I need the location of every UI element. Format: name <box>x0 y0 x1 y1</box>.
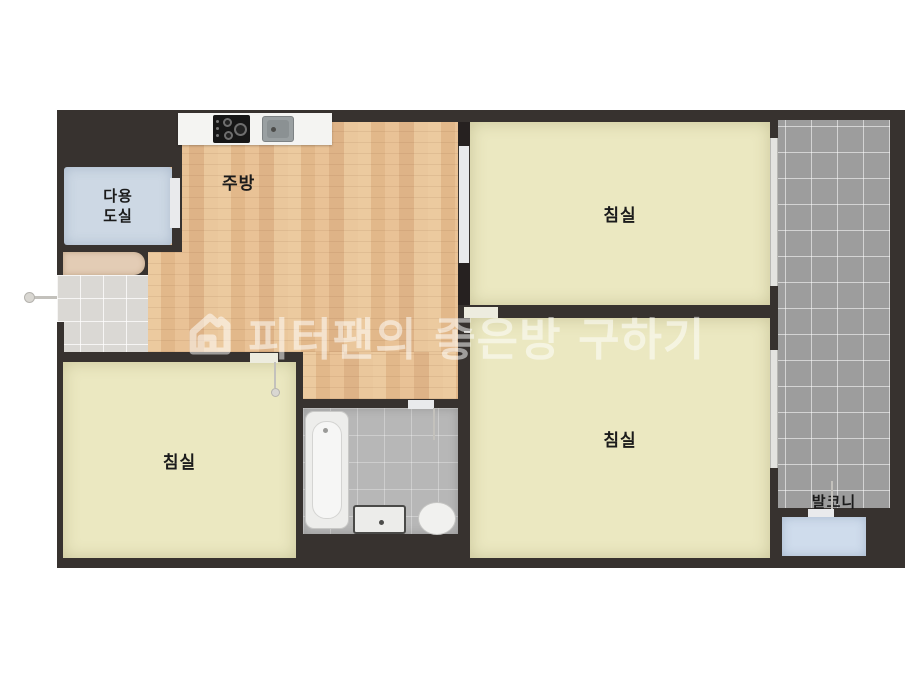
balcony-storage-door-leaf <box>831 481 833 509</box>
bathroom-door <box>408 400 434 409</box>
utility-room-label-line2: 도실 <box>103 206 133 226</box>
wall-stub-b1-door-bottom <box>458 263 470 305</box>
bedroom-top-right-door <box>459 146 469 263</box>
bedroom-bottom-left-label: 침실 <box>163 448 196 473</box>
bedroom-bottom-right-door <box>464 307 498 318</box>
kitchen-label: 주방 <box>222 169 255 194</box>
bedroom-top-right: 침실 <box>470 122 770 305</box>
kitchen-counter <box>178 113 332 145</box>
wall-utility-bottom <box>57 245 182 252</box>
utility-room-label: 다용 도실 <box>103 186 133 227</box>
bathtub-icon <box>305 411 349 529</box>
wall-top-left-mass <box>57 110 182 167</box>
bedroom-bottom-right-label: 침실 <box>603 426 636 451</box>
floorplan-canvas: 다용 도실 침실 침실 침실 발코니 <box>0 0 923 676</box>
entrance-door-handle-icon <box>33 296 57 299</box>
bedroom-bottom-right: 침실 <box>470 318 770 558</box>
toilet-icon <box>418 502 456 535</box>
wall-stub-b1-door-top <box>458 122 470 146</box>
bathroom-door-leaf <box>433 408 435 440</box>
wall-entry-stub <box>57 322 64 352</box>
balcony: 발코니 <box>778 120 890 508</box>
kitchen-sink-icon <box>262 116 294 142</box>
bedroom-bottom-left-door-leaf <box>274 362 276 388</box>
kitchen-floor <box>148 122 458 352</box>
balcony-storage-room <box>782 517 866 556</box>
entrance-door-knob-icon <box>24 292 35 303</box>
bedroom-bottom-left: 침실 <box>63 362 296 558</box>
balcony-storage-door <box>808 509 834 517</box>
utility-room-label-line1: 다용 <box>103 186 133 206</box>
shoe-cabinet <box>63 252 145 275</box>
bedroom-top-right-label: 침실 <box>603 201 636 226</box>
bedroom-bottom-left-door-handle-icon <box>271 388 280 397</box>
bedroom-top-right-window-icon <box>770 138 778 286</box>
utility-room-door <box>170 178 180 228</box>
bedroom-bottom-right-window-icon <box>770 350 778 468</box>
washbasin-icon <box>353 505 406 534</box>
entry-tile-floor <box>57 275 148 352</box>
utility-room: 다용 도실 <box>64 167 172 245</box>
hallway-floor <box>303 352 458 399</box>
gas-stove-icon <box>213 115 250 143</box>
